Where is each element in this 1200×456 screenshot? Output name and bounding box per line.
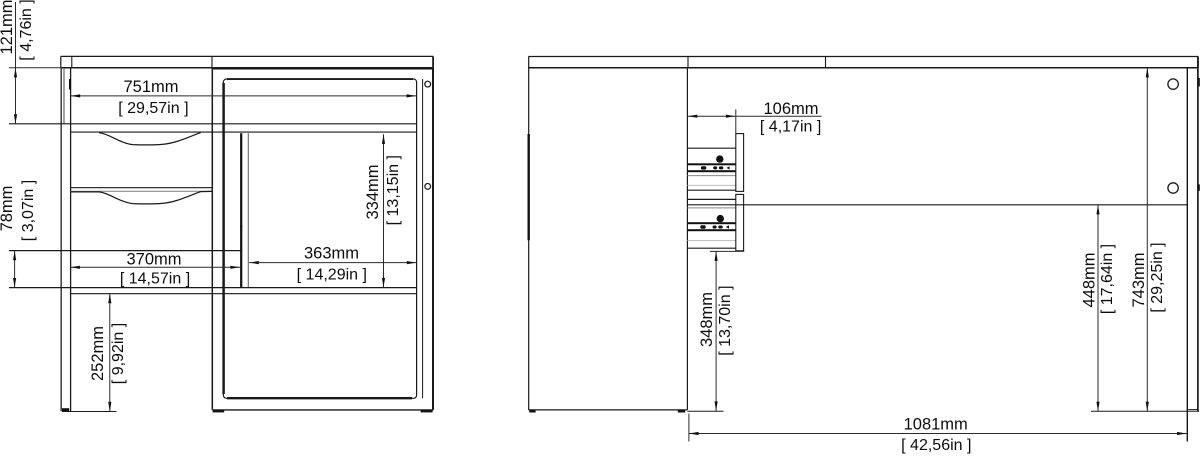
svg-text:[ 9,92in ]: [ 9,92in ]: [110, 323, 127, 384]
svg-text:[ 3,07in ]: [ 3,07in ]: [20, 180, 37, 241]
svg-text:1081mm: 1081mm: [904, 415, 968, 433]
svg-text:[ 42,56in ]: [ 42,56in ]: [901, 437, 971, 454]
svg-text:[ 4,17in ]: [ 4,17in ]: [760, 119, 821, 136]
svg-text:[ 14,57in ]: [ 14,57in ]: [120, 271, 190, 288]
svg-text:121mm: 121mm: [0, 0, 16, 55]
svg-text:[ 17,64in ]: [ 17,64in ]: [1099, 244, 1116, 314]
svg-text:348mm: 348mm: [698, 292, 716, 347]
svg-text:78mm: 78mm: [0, 186, 16, 232]
svg-text:[ 4,76in ]: [ 4,76in ]: [18, 0, 35, 61]
svg-text:370mm: 370mm: [126, 250, 181, 268]
svg-text:[ 29,57in ]: [ 29,57in ]: [118, 100, 188, 117]
svg-text:743mm: 743mm: [1130, 252, 1148, 307]
svg-text:[ 14,29in ]: [ 14,29in ]: [297, 266, 367, 283]
svg-text:448mm: 448mm: [1080, 252, 1098, 307]
svg-text:106mm: 106mm: [763, 100, 818, 118]
svg-text:252mm: 252mm: [89, 326, 107, 381]
svg-text:[ 29,25in ]: [ 29,25in ]: [1149, 242, 1166, 312]
svg-text:[ 13,15in ]: [ 13,15in ]: [385, 155, 402, 225]
svg-text:[ 13,70in ]: [ 13,70in ]: [717, 285, 734, 355]
svg-text:363mm: 363mm: [304, 244, 359, 262]
svg-text:751mm: 751mm: [123, 78, 178, 96]
svg-text:334mm: 334mm: [364, 164, 382, 219]
